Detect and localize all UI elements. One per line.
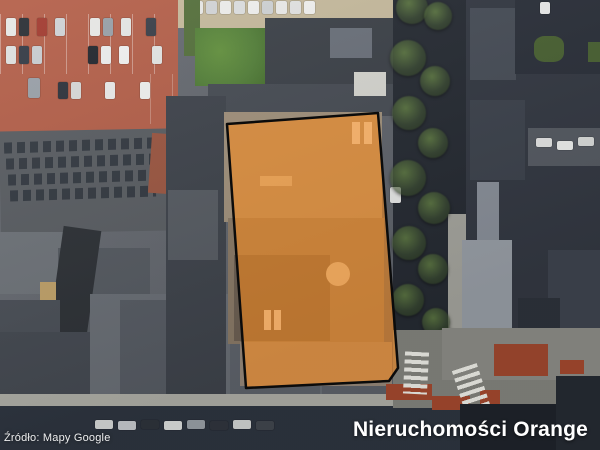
- map-attribution: Źródło: Mapy Google: [4, 432, 111, 444]
- parcel-polygon: [227, 113, 398, 388]
- satellite-map-image: Źródło: Mapy Google Nieruchomości Orange: [0, 0, 600, 450]
- highlighted-parcel-overlay: [0, 0, 600, 450]
- brand-label: Nieruchomości Orange: [353, 418, 588, 442]
